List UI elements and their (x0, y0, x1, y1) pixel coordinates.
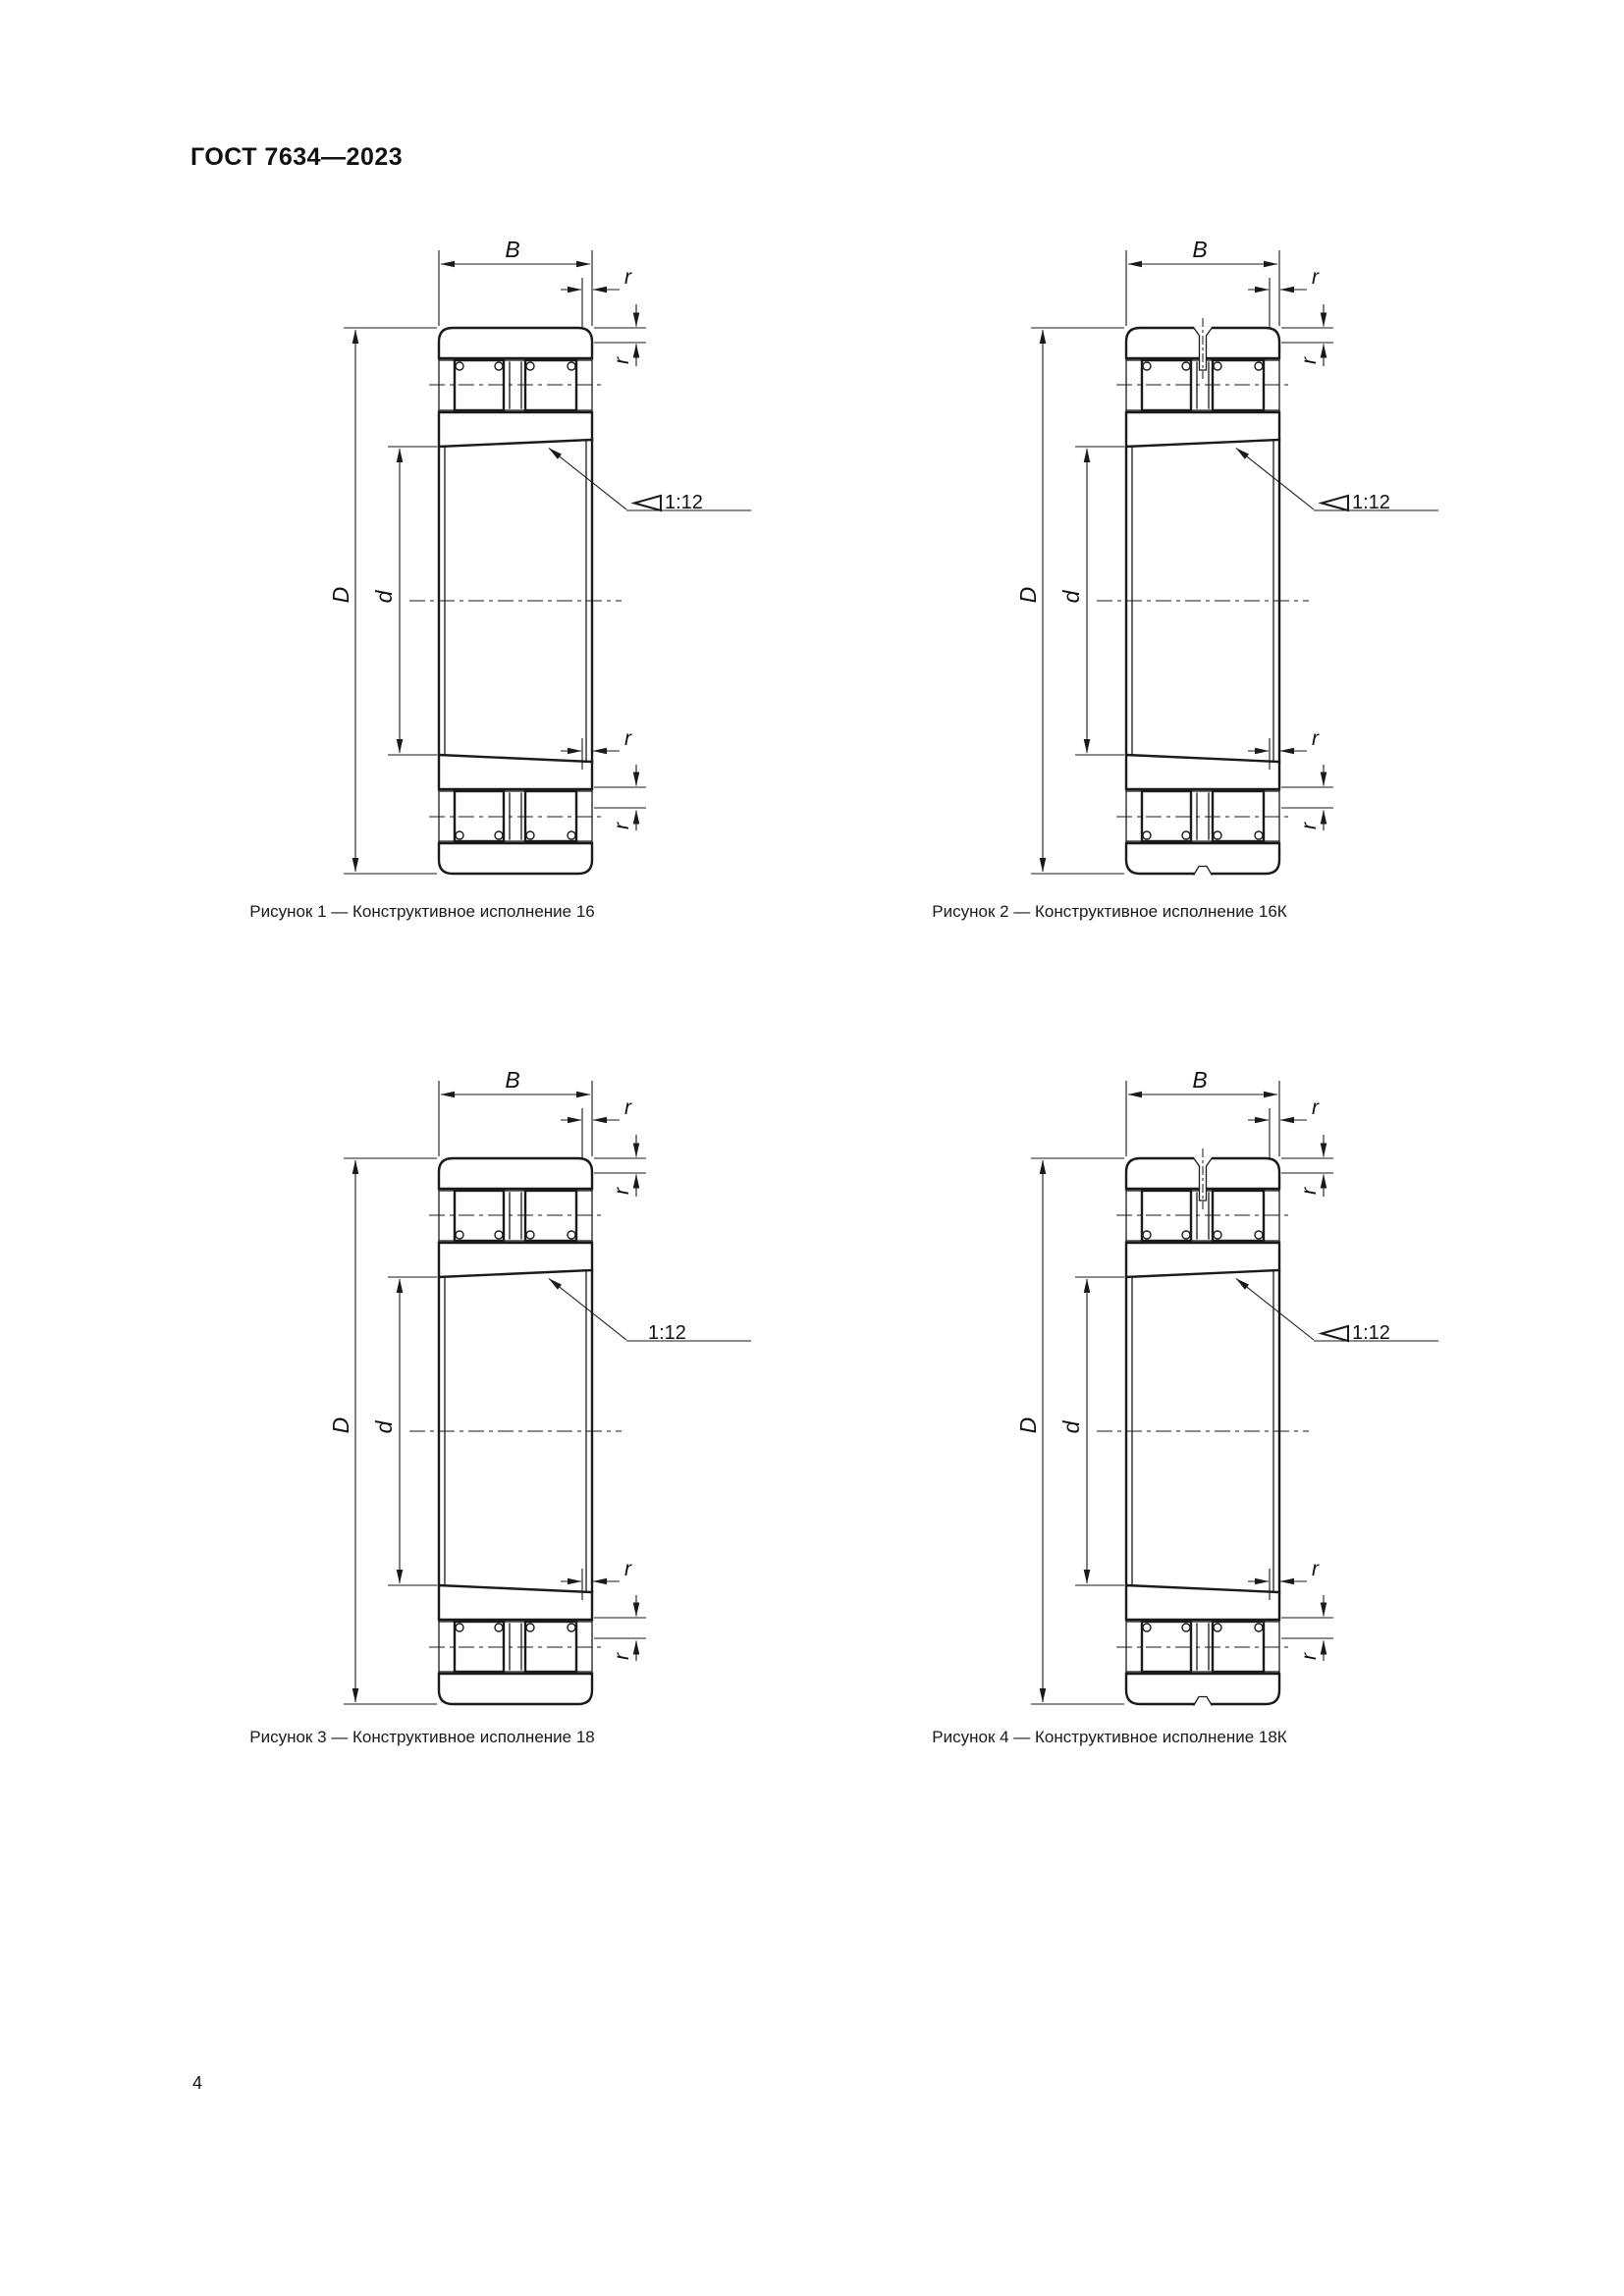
document-header: ГОСТ 7634—2023 (190, 143, 403, 172)
page-number: 4 (192, 2073, 202, 2094)
figure-1-caption: Рисунок 1 — Конструктивное исполнение 16 (147, 902, 697, 922)
taper-value: 1:12 (648, 1322, 686, 1344)
figure-4-drawing: 1:12 (943, 1051, 1453, 1719)
figure-3-caption: Рисунок 3 — Конструктивное исполнение 18 (147, 1728, 697, 1747)
figure-4-caption: Рисунок 4 — Конструктивное исполнение 18… (835, 1728, 1384, 1747)
taper-symbol-icon (634, 496, 661, 510)
figure-1-drawing: 1:12 (255, 221, 766, 888)
document-page: ГОСТ 7634—2023 (0, 0, 1624, 2296)
taper-value: 1:12 (1352, 1322, 1390, 1344)
taper-symbol-icon (1322, 496, 1348, 510)
figure-2-drawing: 1:12 (943, 221, 1453, 888)
taper-value: 1:12 (665, 492, 703, 513)
figure-2-caption: Рисунок 2 — Конструктивное исполнение 16… (835, 902, 1384, 922)
taper-value: 1:12 (1352, 492, 1390, 513)
taper-symbol-icon (1322, 1326, 1348, 1341)
figure-3-drawing: 1:12 (255, 1051, 766, 1719)
